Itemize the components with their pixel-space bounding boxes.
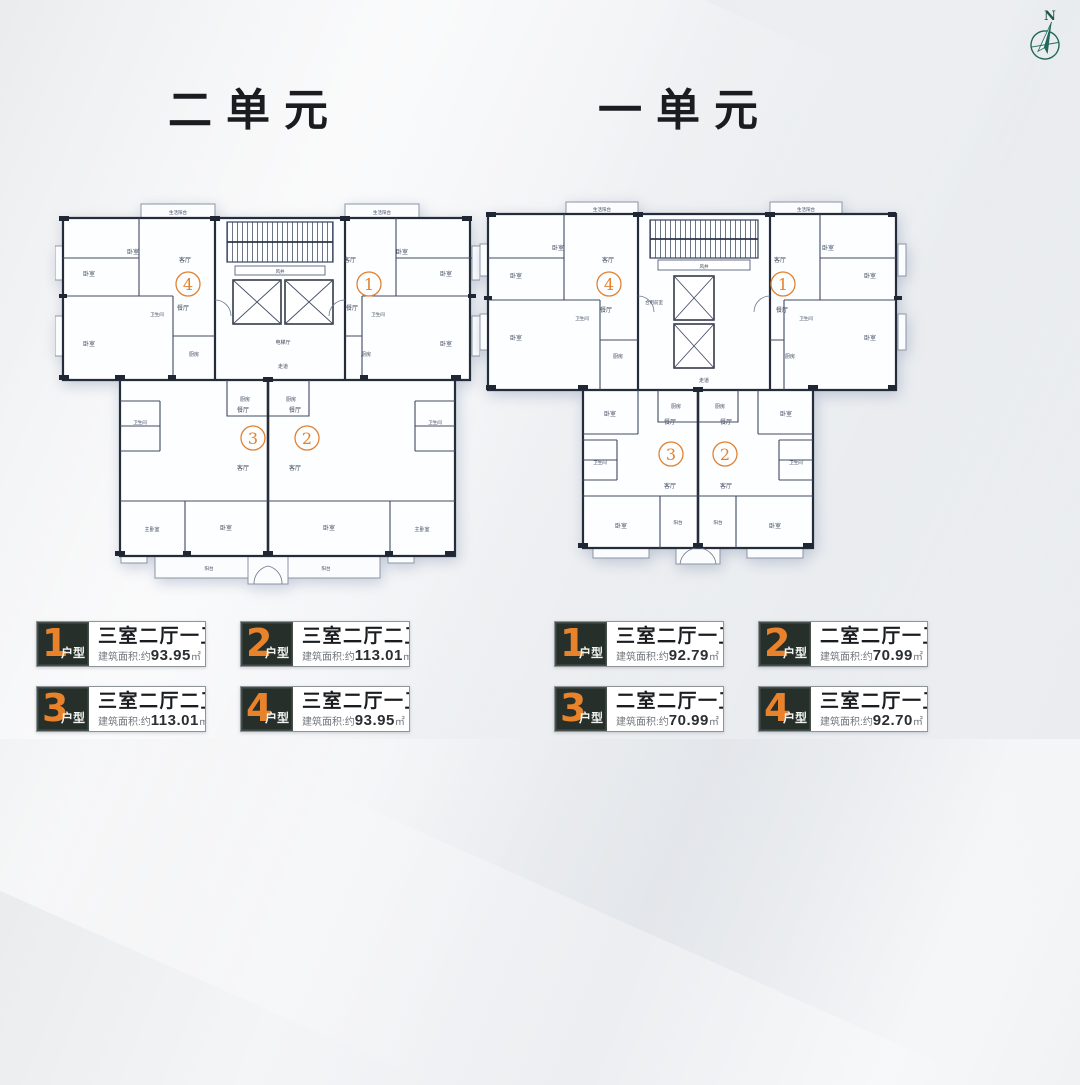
room-label-kitchen: 厨房 (189, 351, 199, 358)
housetype-number-badge: 1 户型 (37, 622, 89, 666)
room-label-corridor: 走道 (278, 363, 288, 370)
housetype-layout: 三室二厅一卫 (302, 691, 409, 713)
housetype-suffix: 户型 (783, 709, 807, 726)
housetype-number-badge: 4 户型 (241, 687, 293, 731)
room-label-bedroom: 卧室 (864, 334, 876, 342)
area-unit: ㎡ (199, 717, 205, 728)
room-label-air-shaft: 风井 (276, 268, 285, 275)
area-value: 92.70 (873, 712, 913, 729)
room-label-elevator-hall: 电梯厅 (275, 339, 290, 346)
housetype-area: 建筑面积:约113.01㎡ (302, 648, 409, 665)
area-value: 113.01 (151, 712, 199, 729)
svg-text:3: 3 (248, 429, 258, 448)
housetype-area: 建筑面积:约92.79㎡ (616, 648, 723, 665)
housetype-number-badge: 1 户型 (555, 622, 607, 666)
area-prefix: 建筑面积:约 (820, 652, 873, 663)
housetype-info: 二室二厅一卫 建筑面积:约70.99㎡ (811, 622, 927, 666)
room-label-living: 客厅 (720, 482, 732, 490)
room-label-bathroom: 卫生间 (593, 459, 607, 466)
housetype-area: 建筑面积:约93.95㎡ (98, 648, 205, 665)
svg-text:2: 2 (720, 445, 730, 464)
room-label-living: 客厅 (344, 256, 356, 264)
room-label-bedroom: 卧室 (220, 524, 232, 532)
room-label-bedroom: 卧室 (552, 244, 564, 252)
room-label-master-bedroom: 主卧室 (414, 526, 429, 533)
room-label-bedroom: 卧室 (83, 340, 95, 348)
housetype-info: 三室二厅一卫 建筑面积:约92.70㎡ (811, 687, 927, 731)
area-value: 70.99 (873, 647, 913, 664)
housetype-info: 三室二厅一卫 建筑面积:约92.79㎡ (607, 622, 723, 666)
area-prefix: 建筑面积:约 (302, 717, 355, 728)
area-prefix: 建筑面积:约 (98, 652, 151, 663)
area-value: 113.01 (355, 647, 403, 664)
area-prefix: 建筑面积:约 (616, 652, 669, 663)
room-label-bedroom: 卧室 (323, 524, 335, 532)
housetype-card-unit1-4: 4 户型 三室二厅一卫 建筑面积:约92.70㎡ (758, 686, 928, 732)
room-label-bathroom: 卫生间 (371, 311, 385, 318)
housetype-card-unit2-3: 3 户型 三室二厅二卫 建筑面积:约113.01㎡ (36, 686, 206, 732)
area-prefix: 建筑面积:约 (616, 717, 669, 728)
area-unit: ㎡ (191, 652, 201, 663)
housetype-area: 建筑面积:约70.99㎡ (616, 713, 723, 730)
housetype-suffix: 户型 (579, 709, 603, 726)
housetype-card-unit1-3: 3 户型 二室二厅一卫 建筑面积:约70.99㎡ (554, 686, 724, 732)
housetype-suffix: 户型 (61, 709, 85, 726)
unit-1-title: 一单元 (598, 74, 772, 138)
room-label-balcony: 阳台 (205, 565, 214, 572)
room-label-dining: 餐厅 (600, 306, 612, 314)
room-label-life-balcony: 生活阳台 (169, 209, 187, 216)
housetype-info: 三室二厅二卫 建筑面积:约113.01㎡ (89, 687, 205, 731)
housetype-suffix: 户型 (265, 709, 289, 726)
housetype-area: 建筑面积:约92.70㎡ (820, 713, 927, 730)
housetype-layout: 三室二厅一卫 (98, 626, 205, 648)
room-label-kitchen: 厨房 (240, 396, 250, 403)
room-label-master-bedroom: 主卧室 (144, 526, 159, 533)
stairs (227, 222, 333, 275)
room-label-bedroom: 卧室 (440, 270, 452, 278)
svg-text:4: 4 (604, 275, 614, 294)
room-label-bathroom: 卫生间 (428, 419, 442, 426)
area-unit: ㎡ (403, 652, 409, 663)
room-label-balcony: 阳台 (714, 519, 723, 526)
area-unit: ㎡ (709, 652, 719, 663)
housetype-layout: 三室二厅二卫 (98, 691, 205, 713)
room-label-living: 客厅 (774, 256, 786, 264)
room-label-dining: 餐厅 (776, 306, 788, 314)
room-label-life-balcony: 生活阳台 (373, 209, 391, 216)
housetype-suffix: 户型 (783, 644, 807, 661)
room-label-living: 客厅 (602, 256, 614, 264)
housetype-info: 三室二厅一卫 建筑面积:约93.95㎡ (89, 622, 205, 666)
room-label-bedroom: 卧室 (864, 272, 876, 280)
room-label-kitchen: 厨房 (785, 353, 795, 360)
housetype-card-unit2-4: 4 户型 三室二厅一卫 建筑面积:约93.95㎡ (240, 686, 410, 732)
housetype-number-badge: 2 户型 (241, 622, 293, 666)
room-label-bedroom: 卧室 (769, 522, 781, 530)
housetype-info: 三室二厅二卫 建筑面积:约113.01㎡ (293, 622, 409, 666)
housetype-suffix: 户型 (61, 644, 85, 661)
housetype-card-unit2-2: 2 户型 三室二厅二卫 建筑面积:约113.01㎡ (240, 621, 410, 667)
room-label-bathroom: 卫生间 (150, 311, 164, 318)
housetype-area: 建筑面积:约113.01㎡ (98, 713, 205, 730)
room-label-kitchen: 厨房 (613, 353, 623, 360)
area-value: 70.99 (669, 712, 709, 729)
housetype-layout: 二室二厅一卫 (820, 626, 927, 648)
area-unit: ㎡ (709, 717, 719, 728)
area-prefix: 建筑面积:约 (820, 717, 873, 728)
area-unit: ㎡ (395, 717, 405, 728)
room-label-bedroom: 卧室 (822, 244, 834, 252)
room-label-bedroom: 卧室 (127, 248, 139, 256)
room-label-living: 客厅 (237, 464, 249, 472)
room-label-kitchen: 厨房 (715, 403, 725, 410)
room-label-air-shaft: 风井 (700, 263, 709, 270)
room-label-dining: 餐厅 (237, 406, 249, 414)
area-value: 93.95 (355, 712, 395, 729)
room-label-dining: 餐厅 (346, 304, 358, 312)
room-label-bedroom: 卧室 (510, 272, 522, 280)
room-label-bedroom: 卧室 (440, 340, 452, 348)
housetype-card-unit2-1: 1 户型 三室二厅一卫 建筑面积:约93.95㎡ (36, 621, 206, 667)
floor-plan-unit-2: 4 1 3 2 生活阳台 生活阳台 卧室 卧室 卧室 卧室 卧室 卧室 客厅 客… (55, 196, 480, 598)
housetype-suffix: 户型 (579, 644, 603, 661)
housetype-card-unit1-2: 2 户型 二室二厅一卫 建筑面积:约70.99㎡ (758, 621, 928, 667)
room-label-dining: 餐厅 (177, 304, 189, 312)
housetype-number-badge: 4 户型 (759, 687, 811, 731)
room-label-bedroom: 卧室 (510, 334, 522, 342)
room-label-balcony: 阳台 (674, 519, 683, 526)
svg-text:3: 3 (666, 445, 676, 464)
housetype-info: 二室二厅一卫 建筑面积:约70.99㎡ (607, 687, 723, 731)
area-unit: ㎡ (913, 717, 923, 728)
housetype-area: 建筑面积:约93.95㎡ (302, 713, 409, 730)
north-compass-icon: N (1016, 4, 1076, 74)
room-label-bedroom: 卧室 (396, 248, 408, 256)
room-label-living: 客厅 (179, 256, 191, 264)
room-label-living: 客厅 (289, 464, 301, 472)
room-label-bedroom: 卧室 (615, 522, 627, 530)
housetype-layout: 三室二厅一卫 (616, 626, 723, 648)
svg-text:1: 1 (778, 275, 788, 294)
room-label-kitchen: 厨房 (671, 403, 681, 410)
room-label-life-balcony: 生活阳台 (593, 206, 611, 213)
room-label-bedroom: 卧室 (83, 270, 95, 278)
housetype-layout: 二室二厅一卫 (616, 691, 723, 713)
housetype-number-badge: 3 户型 (555, 687, 607, 731)
room-label-bathroom: 卫生间 (789, 459, 803, 466)
room-label-bedroom: 卧室 (604, 410, 616, 418)
housetype-number-badge: 3 户型 (37, 687, 89, 731)
room-label-dining: 餐厅 (289, 406, 301, 414)
room-label-kitchen: 厨房 (286, 396, 296, 403)
area-prefix: 建筑面积:约 (302, 652, 355, 663)
room-label-shared-lobby: 合用前室 (645, 299, 663, 306)
housetype-card-unit1-1: 1 户型 三室二厅一卫 建筑面积:约92.79㎡ (554, 621, 724, 667)
room-label-bathroom: 卫生间 (133, 419, 147, 426)
room-label-corridor: 走道 (699, 377, 709, 384)
room-label-balcony: 阳台 (322, 565, 331, 572)
room-label-bedroom: 卧室 (780, 410, 792, 418)
room-label-living: 客厅 (664, 482, 676, 490)
room-label-life-balcony: 生活阳台 (797, 206, 815, 213)
housetype-suffix: 户型 (265, 644, 289, 661)
area-prefix: 建筑面积:约 (98, 717, 151, 728)
room-label-bathroom: 卫生间 (575, 315, 589, 322)
room-label-bathroom: 卫生间 (799, 315, 813, 322)
housetype-layout: 三室二厅一卫 (820, 691, 927, 713)
room-label-dining: 餐厅 (720, 418, 732, 426)
housetype-info: 三室二厅一卫 建筑面积:约93.95㎡ (293, 687, 409, 731)
svg-text:4: 4 (183, 275, 193, 294)
housetype-area: 建筑面积:约70.99㎡ (820, 648, 927, 665)
housetype-number-badge: 2 户型 (759, 622, 811, 666)
area-value: 93.95 (151, 647, 191, 664)
area-value: 92.79 (669, 647, 709, 664)
compass-north-label: N (1044, 9, 1056, 24)
room-label-kitchen: 厨房 (361, 351, 371, 358)
svg-text:1: 1 (364, 275, 374, 294)
housetype-layout: 三室二厅二卫 (302, 626, 409, 648)
floor-plan-unit-1: 4 1 3 2 生活阳台 生活阳台 卧室 卧室 卧室 卧室 卧室 卧室 客厅 客… (478, 196, 908, 586)
room-label-dining: 餐厅 (664, 418, 676, 426)
unit-2-title: 二单元 (168, 74, 342, 138)
svg-text:2: 2 (302, 429, 312, 448)
area-unit: ㎡ (913, 652, 923, 663)
stairs (650, 220, 758, 270)
